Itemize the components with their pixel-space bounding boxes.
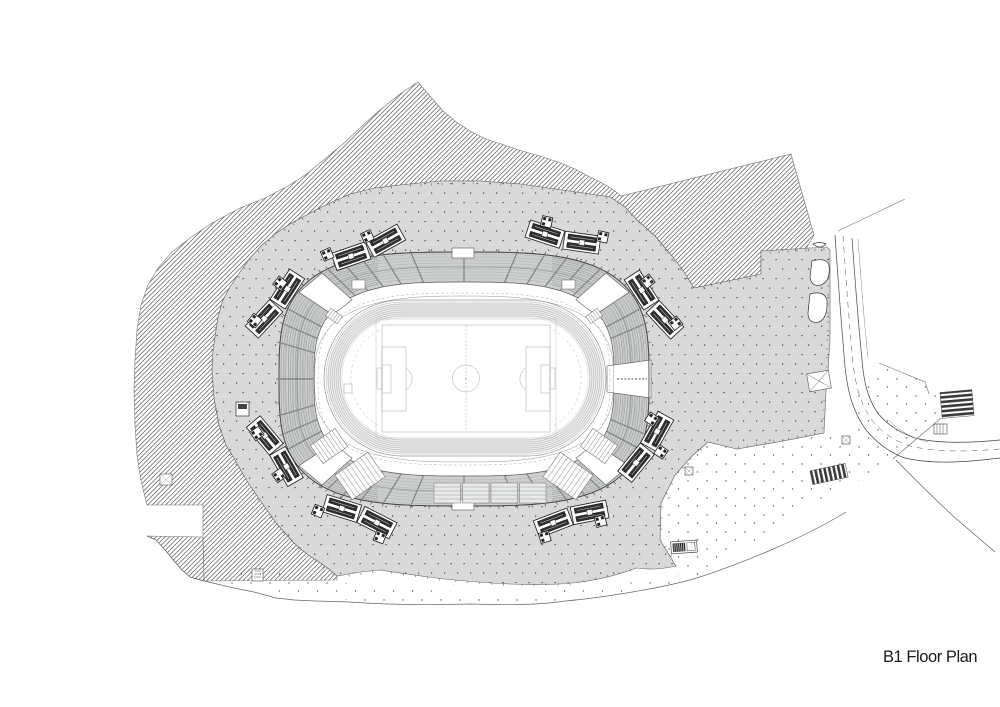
- svg-text:B1 Floor Plan: B1 Floor Plan: [883, 648, 977, 666]
